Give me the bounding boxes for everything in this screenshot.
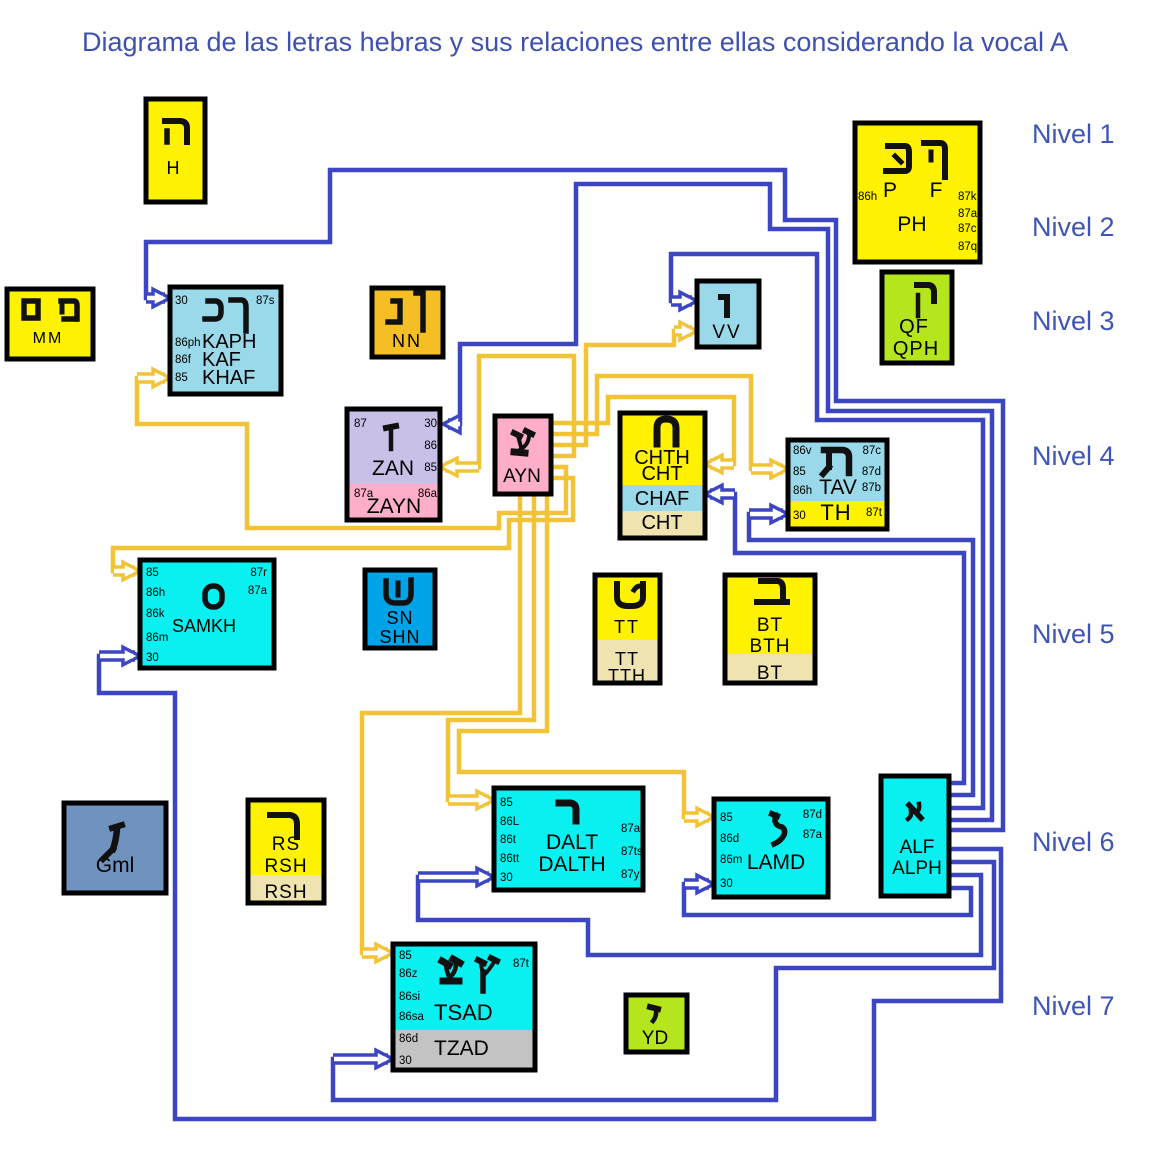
svg-text:SAMKH: SAMKH — [172, 616, 236, 636]
svg-text:YD: YD — [642, 1028, 668, 1049]
svg-text:TTH: TTH — [608, 666, 646, 686]
svg-text:BT: BT — [757, 663, 783, 684]
svg-text:30: 30 — [424, 418, 437, 430]
svg-text:ALF: ALF — [900, 837, 935, 858]
svg-text:Nivel 7: Nivel 7 — [1032, 991, 1115, 1021]
svg-text:87ts: 87ts — [621, 846, 643, 858]
svg-text:LAMD: LAMD — [747, 851, 805, 874]
svg-text:86k: 86k — [146, 608, 165, 620]
svg-text:TAV: TAV — [819, 476, 857, 499]
svg-text:TZAD: TZAD — [434, 1037, 489, 1060]
svg-text:85: 85 — [175, 372, 188, 384]
svg-text:Nivel 4: Nivel 4 — [1032, 441, 1115, 471]
svg-text:TSAD: TSAD — [434, 1000, 493, 1025]
svg-text:87k: 87k — [958, 191, 977, 203]
svg-text:Nivel 3: Nivel 3 — [1032, 306, 1115, 336]
svg-text:Diagrama de las letras hebras: Diagrama de las letras hebras y sus rela… — [82, 27, 1068, 57]
svg-text:ZAYN: ZAYN — [367, 495, 421, 518]
svg-text:ZAN: ZAN — [372, 457, 414, 480]
svg-text:H: H — [167, 158, 180, 178]
svg-text:TT: TT — [614, 617, 640, 637]
svg-text:87t: 87t — [866, 507, 883, 519]
svg-text:86v: 86v — [793, 445, 812, 457]
svg-text:DALT: DALT — [546, 831, 598, 854]
svg-text:87d: 87d — [803, 809, 822, 821]
svg-text:KHAF: KHAF — [202, 367, 255, 389]
svg-text:86h: 86h — [146, 587, 165, 599]
svg-text:85: 85 — [146, 567, 159, 579]
svg-text:87a: 87a — [621, 823, 641, 835]
svg-text:87c: 87c — [862, 445, 881, 457]
svg-text:30: 30 — [793, 510, 806, 522]
svg-text:TH: TH — [820, 500, 851, 525]
svg-text:BTH: BTH — [750, 636, 791, 657]
svg-text:87q: 87q — [958, 241, 977, 253]
svg-text:DALTH: DALTH — [538, 853, 605, 876]
svg-text:PH: PH — [897, 213, 926, 236]
svg-text:CHT: CHT — [641, 463, 682, 485]
svg-text:87s: 87s — [256, 295, 275, 307]
svg-text:RSH: RSH — [264, 882, 307, 903]
svg-text:86m: 86m — [146, 632, 168, 644]
svg-text:ALPH: ALPH — [892, 858, 942, 879]
svg-text:86d: 86d — [720, 833, 739, 845]
svg-text:86z: 86z — [399, 968, 418, 980]
svg-text:30: 30 — [175, 295, 188, 307]
svg-text:85: 85 — [424, 462, 437, 474]
svg-text:RSH: RSH — [264, 856, 307, 877]
svg-text:87a: 87a — [958, 208, 978, 220]
svg-text:Nivel 6: Nivel 6 — [1032, 827, 1115, 857]
svg-text:86f: 86f — [175, 354, 192, 366]
svg-text:86sa: 86sa — [399, 1011, 425, 1023]
svg-text:CHT: CHT — [641, 512, 682, 534]
svg-text:86t: 86t — [500, 834, 517, 846]
svg-text:87b: 87b — [862, 482, 881, 494]
svg-text:30: 30 — [146, 652, 159, 664]
svg-text:QPH: QPH — [893, 338, 939, 360]
svg-text:MM: MM — [33, 330, 64, 347]
svg-text:86si: 86si — [399, 991, 420, 1003]
svg-text:F: F — [930, 179, 943, 202]
svg-text:87d: 87d — [862, 466, 881, 478]
svg-text:86L: 86L — [500, 816, 520, 828]
svg-text:85: 85 — [793, 466, 806, 478]
svg-text:Nivel 5: Nivel 5 — [1032, 619, 1115, 649]
svg-text:87r: 87r — [250, 567, 267, 579]
svg-text:87a: 87a — [248, 585, 268, 597]
svg-text:P: P — [883, 179, 897, 202]
svg-text:86h: 86h — [793, 485, 812, 497]
svg-text:BT: BT — [757, 615, 783, 636]
svg-text:85: 85 — [500, 797, 513, 809]
svg-text:Nivel 1: Nivel 1 — [1032, 119, 1115, 149]
svg-text:87c: 87c — [958, 223, 977, 235]
svg-text:Nivel 2: Nivel 2 — [1032, 212, 1115, 242]
svg-text:86h: 86h — [858, 191, 877, 203]
svg-text:87y: 87y — [621, 869, 640, 881]
svg-text:87a: 87a — [803, 829, 823, 841]
svg-text:SHN: SHN — [379, 627, 420, 647]
svg-text:AYN: AYN — [503, 466, 541, 487]
svg-text:86d: 86d — [399, 1033, 418, 1045]
svg-text:CHAF: CHAF — [635, 488, 689, 510]
svg-text:NN: NN — [392, 331, 422, 351]
svg-text:85: 85 — [720, 812, 733, 824]
svg-text:86: 86 — [424, 440, 437, 452]
svg-text:SN: SN — [386, 608, 413, 628]
svg-text:85: 85 — [399, 950, 412, 962]
svg-text:30: 30 — [500, 872, 513, 884]
svg-text:86ph: 86ph — [175, 337, 201, 349]
svg-text:30: 30 — [399, 1055, 412, 1067]
svg-text:86m: 86m — [720, 854, 742, 866]
svg-text:87t: 87t — [513, 958, 530, 970]
svg-text:86tt: 86tt — [500, 853, 520, 865]
svg-text:QF: QF — [899, 316, 929, 338]
svg-text:87: 87 — [354, 418, 367, 430]
svg-text:VV: VV — [712, 322, 741, 343]
svg-text:30: 30 — [720, 878, 733, 890]
